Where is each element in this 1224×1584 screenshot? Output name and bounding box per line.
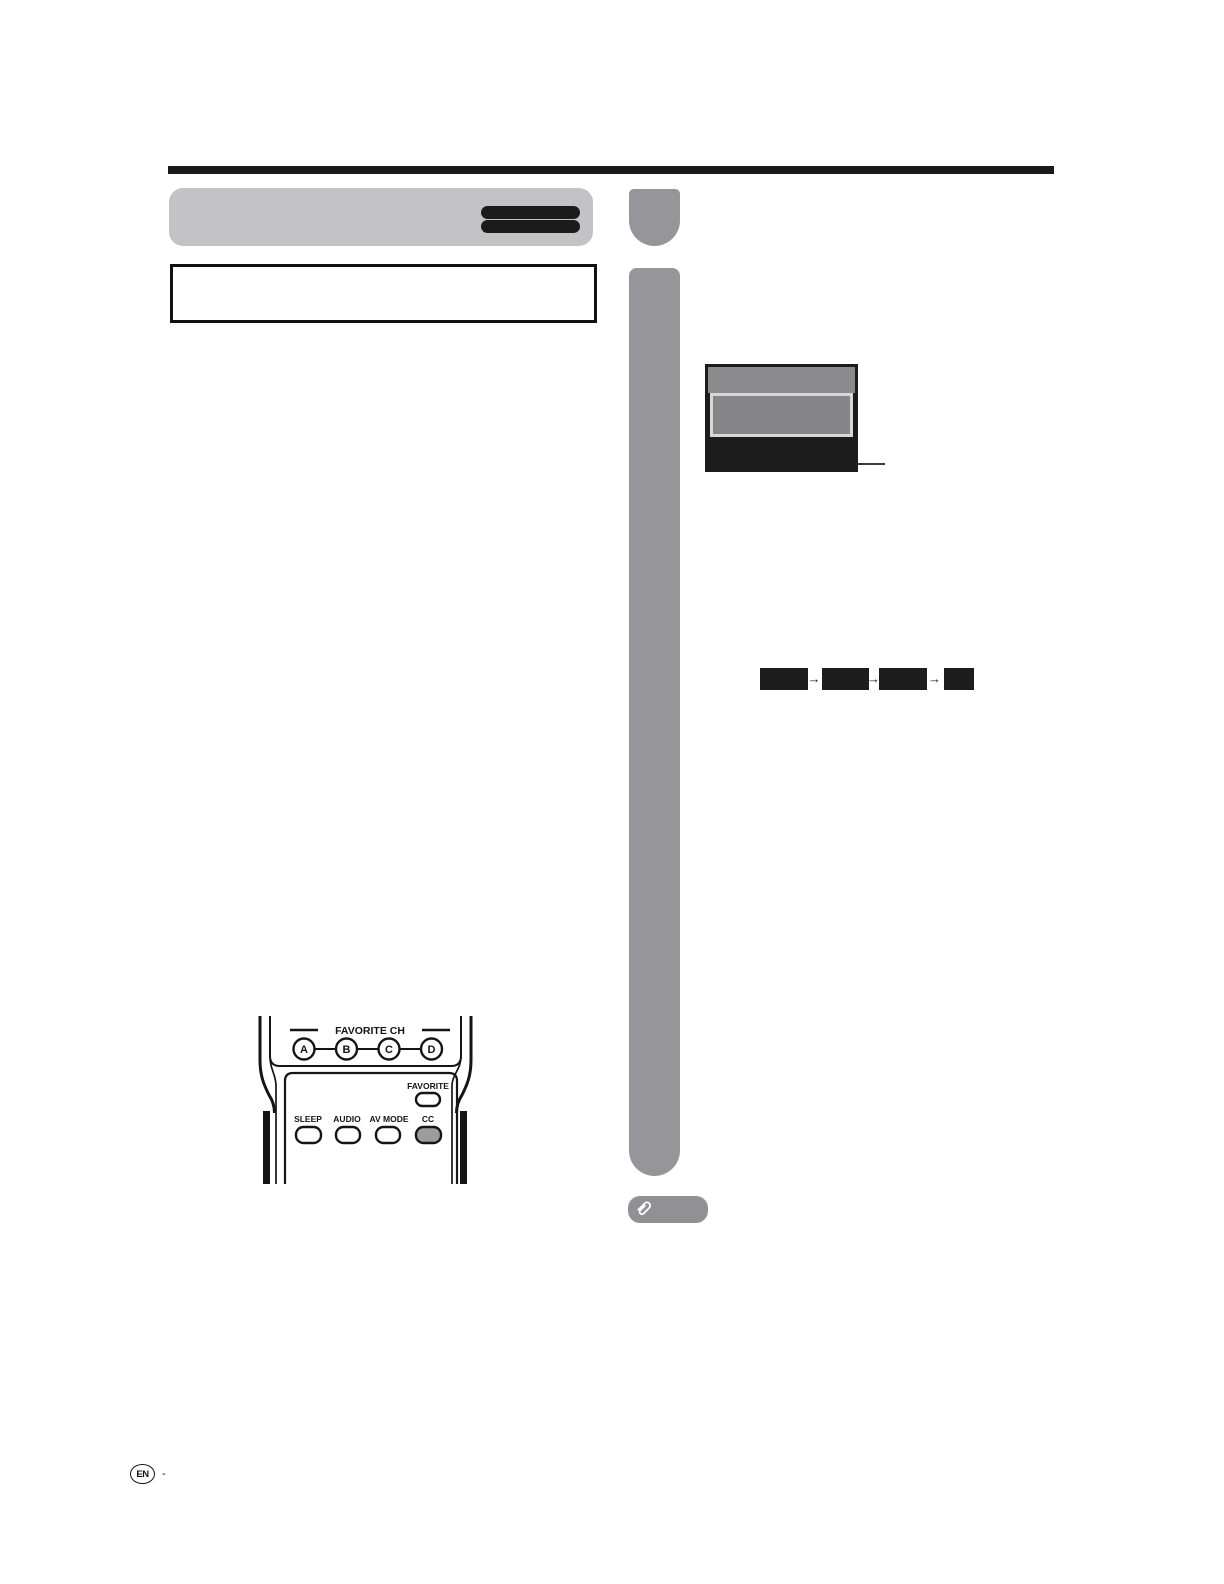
- osd-screenshot: [705, 364, 858, 472]
- section-column-bar: [629, 268, 680, 1176]
- heading-redaction-pill: [481, 220, 580, 233]
- osd-highlighted-row: [710, 393, 853, 437]
- remote-right-wall: [460, 1111, 467, 1184]
- channel-b-label: B: [343, 1044, 351, 1056]
- audio-label: AUDIO: [333, 1114, 361, 1124]
- favorite-label: FAVORITE: [407, 1081, 449, 1091]
- arrow-right-icon: →: [925, 669, 944, 689]
- section-heading-banner: [169, 188, 593, 246]
- remote-left-inner-line: [270, 1056, 276, 1184]
- osd-callout-line: [858, 463, 885, 465]
- channel-c-label: C: [385, 1044, 393, 1056]
- arrow-right-icon: →: [806, 669, 822, 689]
- av-mode-label: AV MODE: [369, 1114, 408, 1124]
- remote-control-illustration: FAVORITE CH A B C D FAVORITE SLEEP AUDIO…: [253, 1016, 477, 1184]
- page-top-rule: [168, 166, 1054, 174]
- remote-left-wall: [263, 1111, 270, 1184]
- cc-button-highlighted: [416, 1127, 441, 1143]
- channel-d-label: D: [428, 1044, 436, 1056]
- arrow-right-icon: →: [867, 669, 879, 689]
- favorite-ch-label: FAVORITE CH: [335, 1025, 405, 1037]
- info-box: [170, 264, 597, 323]
- sleep-label: SLEEP: [294, 1114, 322, 1124]
- cc-mode-box: [822, 668, 869, 690]
- language-badge: EN: [130, 1464, 155, 1484]
- cc-mode-box: [760, 668, 808, 690]
- audio-button: [336, 1127, 360, 1143]
- footer-separator: -: [162, 1468, 166, 1480]
- remote-control-drawing: FAVORITE CH A B C D FAVORITE SLEEP AUDIO…: [253, 1016, 477, 1184]
- channel-a-label: A: [300, 1044, 308, 1056]
- manual-page: → → →: [0, 0, 1224, 1584]
- osd-screen-area: [708, 367, 855, 393]
- cc-label: CC: [422, 1114, 434, 1124]
- favorite-button: [416, 1093, 440, 1106]
- note-tag: [628, 1196, 708, 1223]
- section-column-cap: [629, 189, 680, 246]
- heading-redaction-pill: [481, 206, 580, 219]
- av-mode-button: [376, 1127, 400, 1143]
- sleep-button: [296, 1127, 321, 1143]
- cc-mode-box: [944, 668, 974, 690]
- paperclip-icon: [633, 1198, 655, 1220]
- cc-mode-box: [879, 668, 927, 690]
- page-footer: EN -: [130, 1464, 166, 1484]
